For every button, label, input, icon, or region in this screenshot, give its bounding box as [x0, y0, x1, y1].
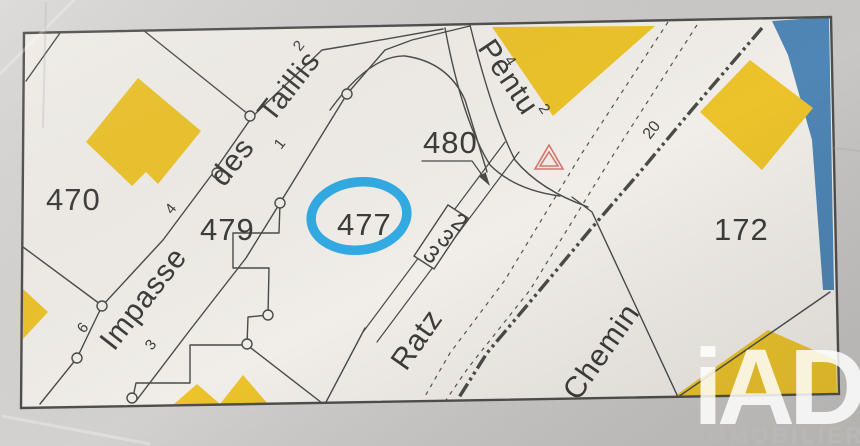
- iad-logo-subtitle: IMMOBILIER: [698, 423, 860, 446]
- cadastral-map-photo: 3 3 2 470 479 477 480 172 Impasse des Ta…: [0, 0, 860, 446]
